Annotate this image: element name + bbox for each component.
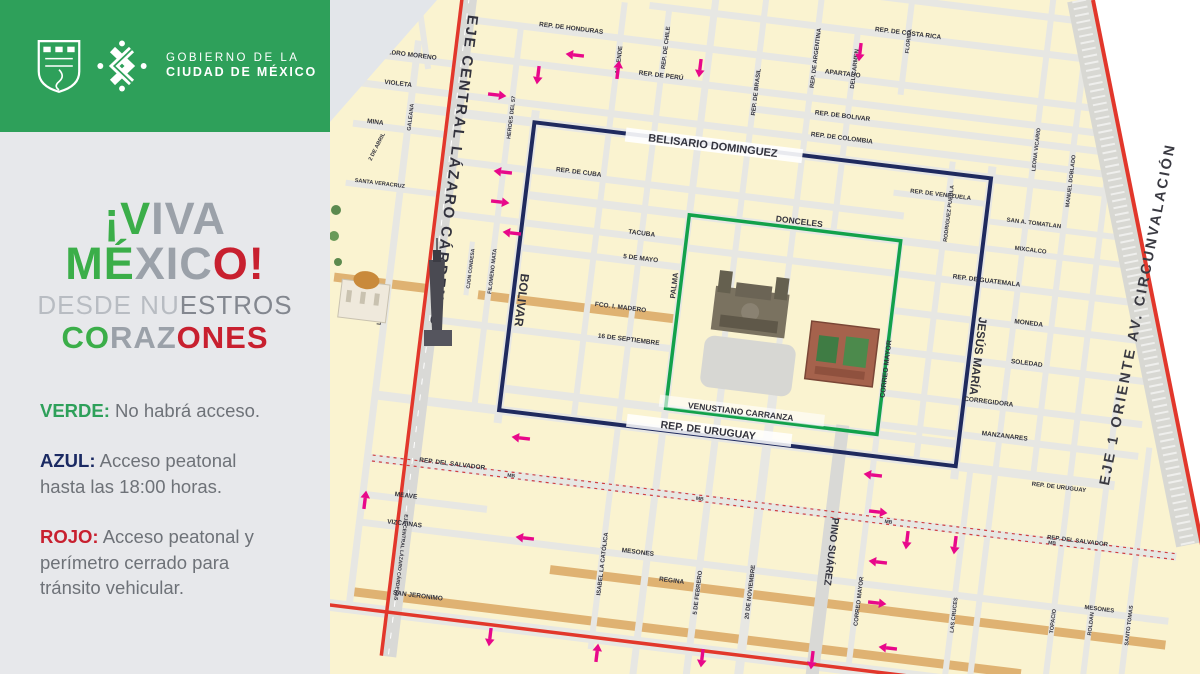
headline-line1: ¡VIVA [0, 196, 330, 241]
headline-viva-green: ¡V [104, 193, 151, 244]
government-name-line1: GOBIERNO DE LA [166, 51, 317, 65]
zocalo-plaza [699, 335, 797, 398]
headline-mexico-red: O! [213, 238, 265, 289]
headline-corazones-gray: RAZ [110, 320, 177, 355]
headline-corazones-red: ONES [177, 320, 269, 355]
campaign-headline: ¡VIVA MÉXICO! DESDE NUESTROS CORAZONES [0, 196, 330, 353]
palacio-nacional-building [805, 321, 880, 387]
legend-item-rojo: ROJO: Acceso peatonal y perímetro cerrad… [40, 524, 268, 602]
sidebar: GOBIERNO DE LA CIUDAD DE MÉXICO ¡VIVA MÉ… [0, 0, 330, 674]
headline-line4: CORAZONES [0, 322, 330, 353]
legend-term-rojo: ROJO: [40, 526, 99, 547]
city-map-svg: REP. DE COSTA RICA REP. DE HONDURAS APAR… [330, 0, 1200, 674]
legend-term-azul: AZUL: [40, 450, 95, 471]
headline-mexico-gray: XIC [135, 238, 213, 289]
metrobus-marker-2: MB [696, 496, 705, 503]
headline-desde-light: DESDE NU [37, 290, 179, 320]
legend-desc-verde: No habrá acceso. [115, 400, 260, 421]
legend-item-azul: AZUL: Acceso peatonal hasta las 18:00 ho… [40, 448, 268, 500]
metrobus-marker-3: MB [884, 519, 893, 526]
legend: VERDE: No habrá acceso. AZUL: Acceso pea… [40, 398, 268, 625]
government-name: GOBIERNO DE LA CIUDAD DE MÉXICO [166, 51, 317, 81]
legend-item-verde: VERDE: No habrá acceso. [40, 398, 268, 424]
headline-mexico-green: MÉ [65, 238, 135, 289]
cdmx-shield-icon [36, 38, 82, 94]
government-header: GOBIERNO DE LA CIUDAD DE MÉXICO [0, 0, 330, 132]
headline-desde-dark: ESTROS [180, 290, 293, 320]
metrobus-marker-4: MB [1048, 540, 1057, 547]
government-name-line2: CIUDAD DE MÉXICO [166, 65, 317, 81]
infographic: { "sidebar": { "government": {"line1": "… [0, 0, 1200, 674]
headline-viva-gray: IVA [151, 193, 226, 244]
city-map: REP. DE COSTA RICA REP. DE HONDURAS APAR… [330, 0, 1200, 674]
metrobus-marker-1: MB [507, 473, 516, 480]
legend-term-verde: VERDE: [40, 400, 110, 421]
headline-line3: DESDE NUESTROS [0, 292, 330, 318]
headline-corazones-green: CO [61, 320, 110, 355]
cdmx-knot-icon [96, 38, 148, 94]
headline-line2: MÉXICO! [0, 241, 330, 286]
